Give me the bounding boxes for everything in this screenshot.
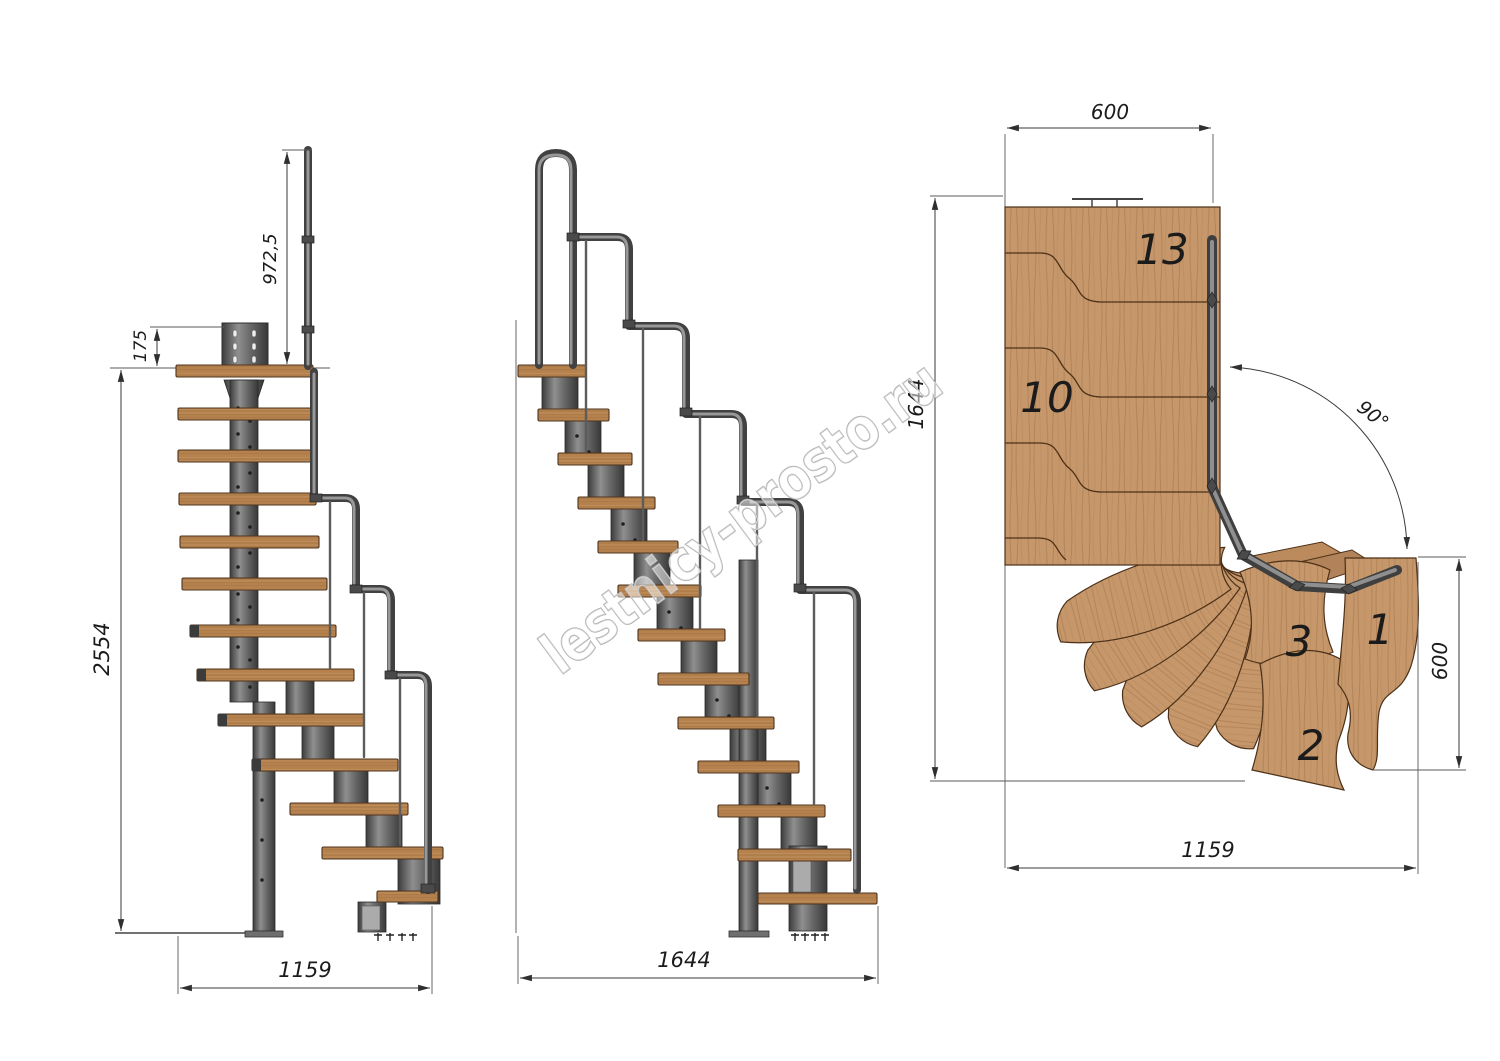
dim-label-handrail-height: 972,5 (260, 233, 281, 285)
dim-label-plate-offset: 175 (131, 330, 151, 362)
dim-label-total-length: 1644 (657, 948, 710, 972)
dim-total-height: 2554 (90, 370, 121, 931)
tread (182, 578, 327, 590)
staircase-drawing: 972,5 175 2554 1159 (0, 0, 1500, 1061)
drawing-canvas: 972,5 175 2554 1159 (0, 0, 1500, 1061)
tread (178, 450, 312, 462)
anchor-bolts-side (791, 933, 829, 941)
dim-label-plan-right-width: 600 (1428, 642, 1452, 680)
tread (218, 714, 364, 726)
dim-label-plan-bottom-length: 1159 (1181, 838, 1234, 862)
center-column (224, 380, 283, 937)
tread (197, 669, 354, 681)
step-label-3: 3 (1286, 617, 1313, 666)
step-label-10: 10 (1020, 373, 1073, 422)
dim-turn-angle: 90° (1230, 367, 1407, 549)
tread (638, 629, 725, 641)
tread (252, 759, 398, 771)
anchor-bolts (374, 933, 417, 941)
tread (658, 673, 749, 685)
tread (738, 849, 851, 861)
tread (190, 625, 336, 637)
dim-plate-offset: 175 (131, 327, 224, 366)
top-bracket (1072, 199, 1143, 207)
tread (176, 365, 313, 377)
tread (538, 409, 609, 421)
step-label-2: 2 (1298, 721, 1325, 770)
handrail-front (302, 150, 435, 893)
step-label-13: 13 (1135, 225, 1188, 274)
tread (178, 408, 311, 420)
tread (558, 453, 632, 465)
treads-front (176, 365, 443, 902)
dim-label-plan-top-width: 600 (1091, 100, 1129, 124)
tread (180, 536, 319, 548)
tread (678, 717, 774, 729)
tread (758, 893, 877, 904)
plan-view: 13 10 3 1 2 600 1644 90° 600 (904, 100, 1466, 874)
dim-plan-top-width: 600 (1007, 100, 1213, 203)
dim-label-base-width: 1159 (278, 958, 331, 982)
tread (718, 805, 825, 817)
tread (179, 493, 316, 505)
dim-label-total-height: 2554 (90, 622, 114, 675)
dim-base-width: 1159 (178, 906, 432, 994)
tread (290, 803, 408, 815)
mounting-plate (222, 323, 268, 368)
dim-label-turn-angle: 90° (1353, 396, 1393, 434)
tread (698, 761, 799, 773)
step-label-1: 1 (1367, 605, 1394, 654)
front-elevation-view: 972,5 175 2554 1159 (90, 150, 443, 994)
